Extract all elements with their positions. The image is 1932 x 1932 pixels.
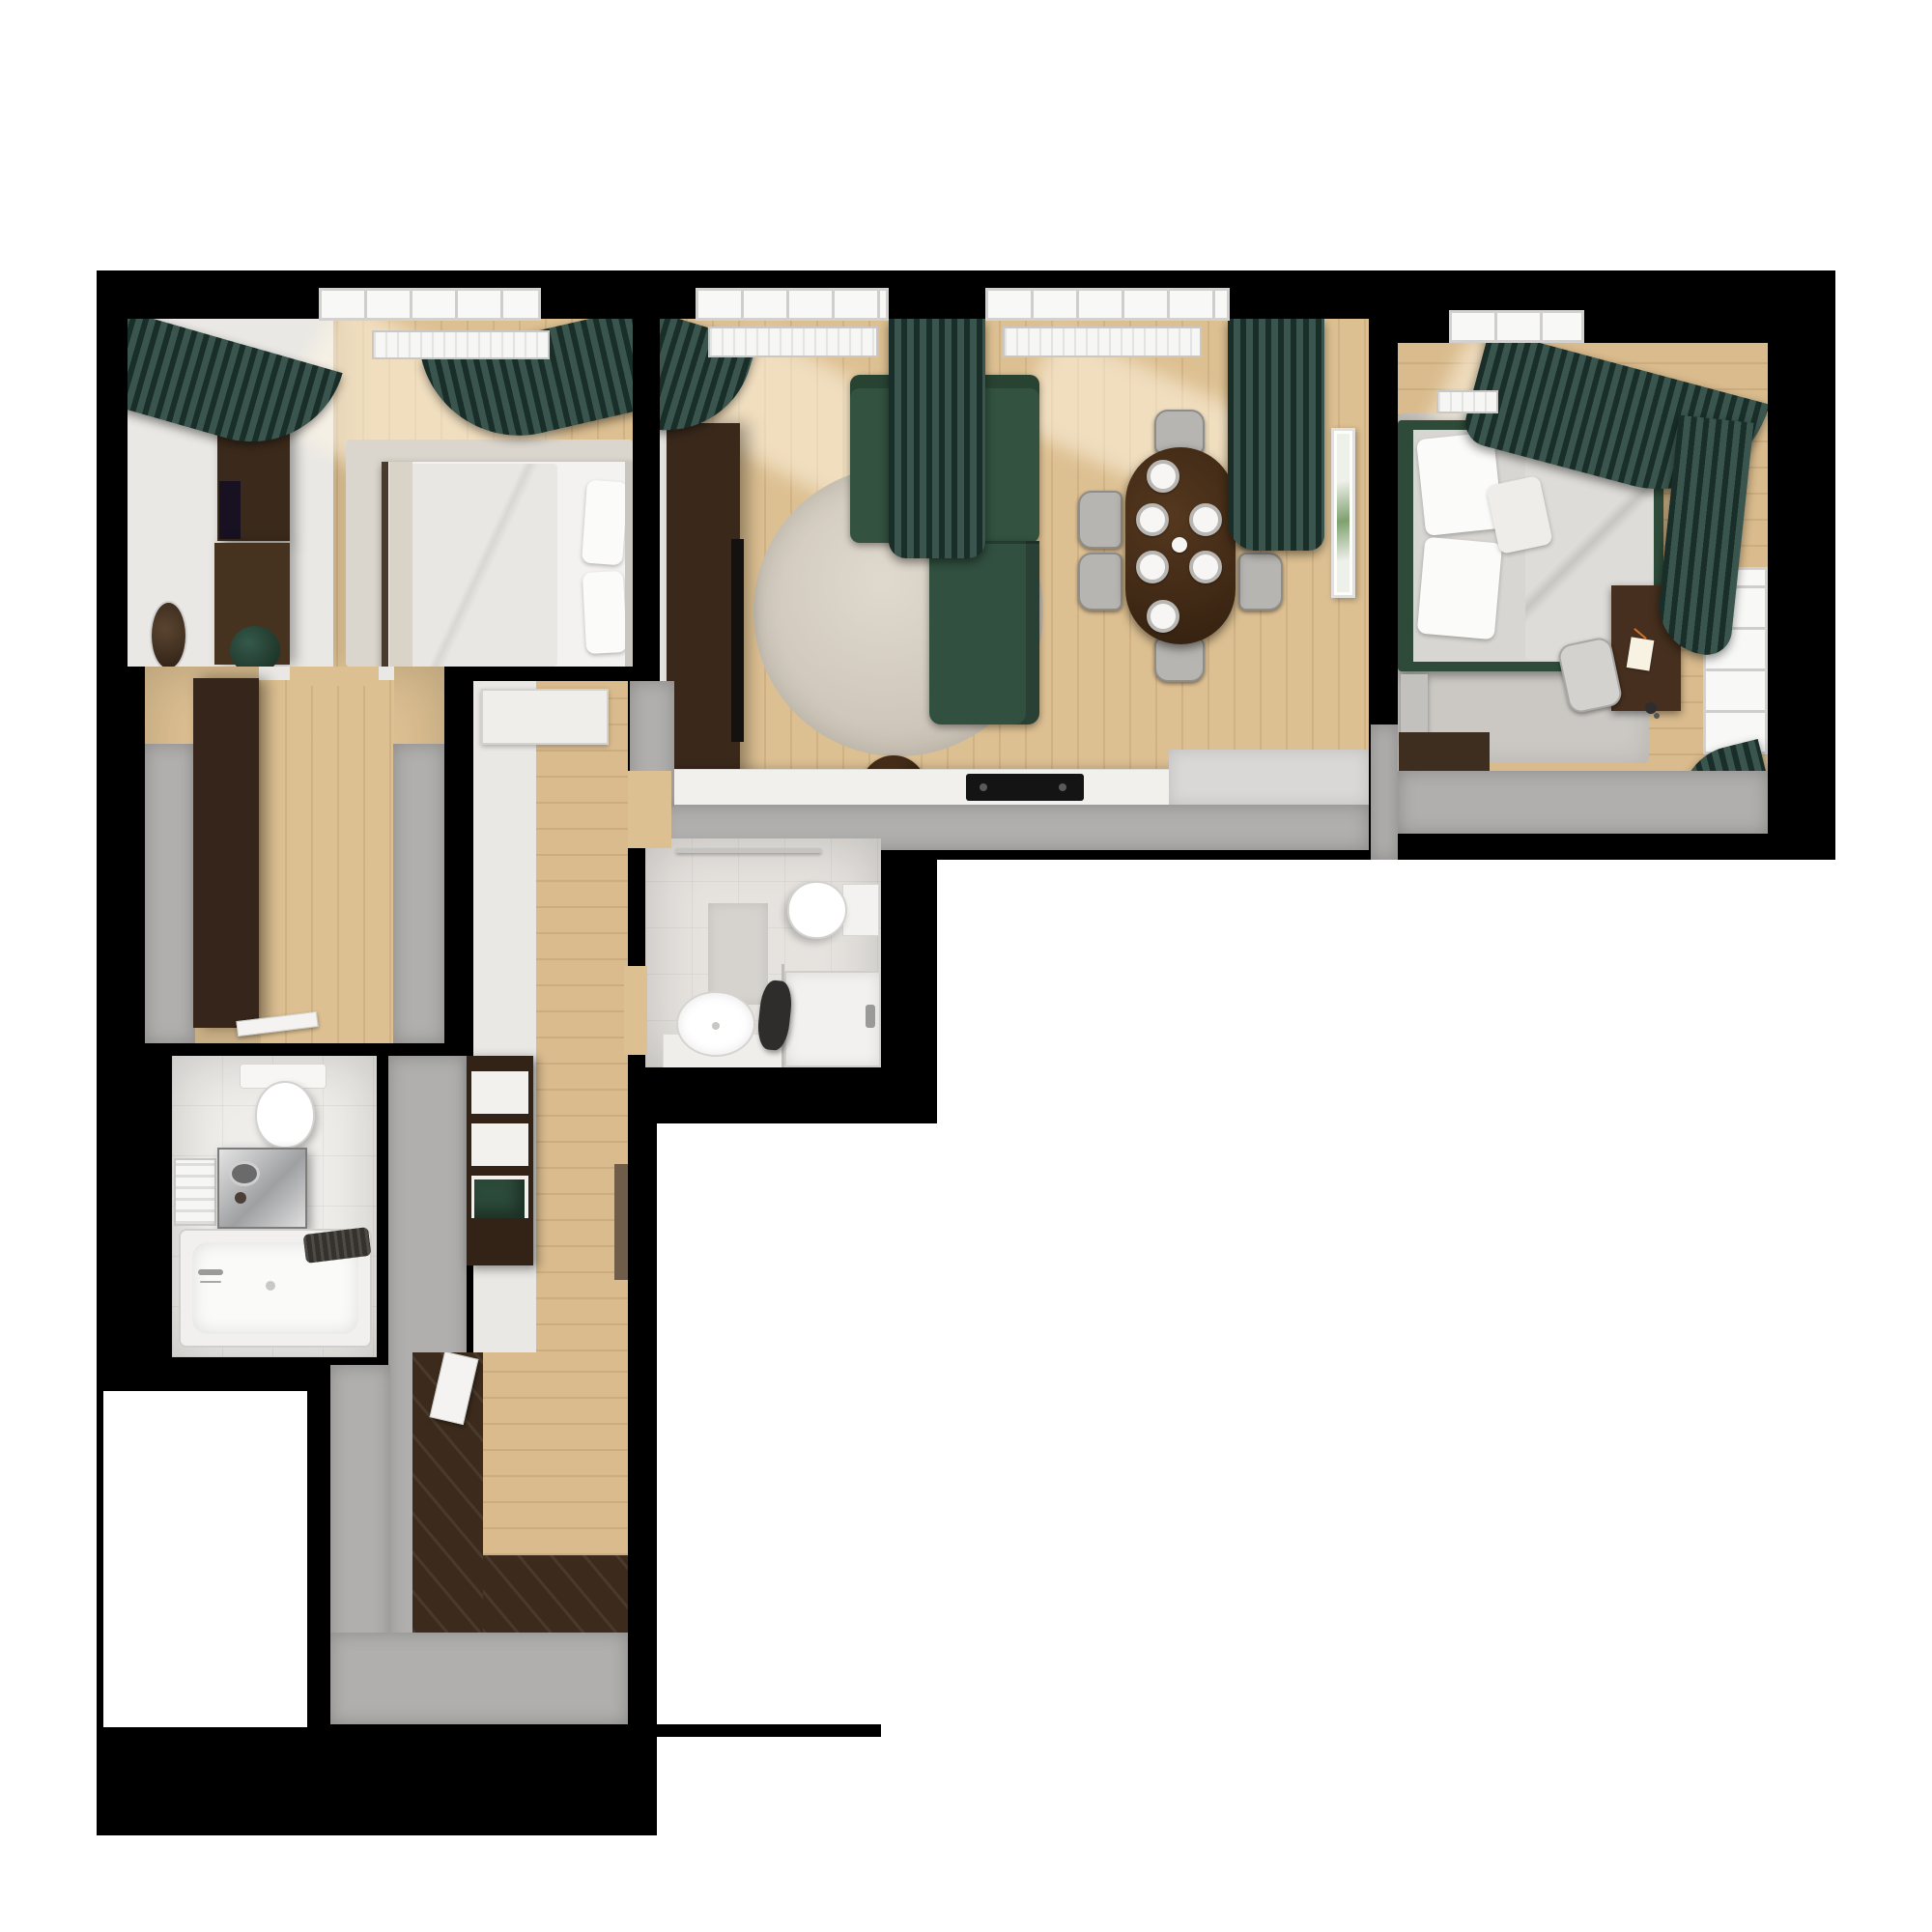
dining-plate-3 bbox=[1189, 503, 1222, 536]
bedroom1-bed-footboard bbox=[382, 462, 388, 667]
room-living-dining bbox=[660, 319, 1369, 850]
room-hallway bbox=[145, 667, 444, 1043]
bedroom2-radiator bbox=[1436, 390, 1498, 413]
dining-plate-4 bbox=[1136, 551, 1169, 583]
dining-plate-6 bbox=[1147, 600, 1179, 633]
bathroom2-sink bbox=[676, 991, 755, 1057]
bedroom1-bed-throw bbox=[389, 462, 412, 667]
shower-fixture bbox=[866, 1005, 875, 1028]
cooktop-knob-2 bbox=[1059, 783, 1066, 791]
cooktop-knob-1 bbox=[980, 783, 987, 791]
washing-machine-knob bbox=[235, 1192, 246, 1204]
wall-bar-bottom bbox=[657, 1724, 881, 1737]
room-bathroom-2 bbox=[645, 838, 881, 1067]
living-window-right bbox=[985, 288, 1230, 321]
room-bedroom-1 bbox=[128, 319, 633, 667]
hallway-west-wall-cap bbox=[145, 744, 195, 1043]
bathroom2-towel-rail bbox=[676, 848, 821, 853]
bathroom1-toilet-bowl bbox=[255, 1081, 315, 1149]
corridor-open-wardrobe bbox=[467, 1056, 533, 1265]
dining-plate-5 bbox=[1189, 551, 1222, 583]
bedroom1-pouf bbox=[230, 626, 280, 667]
kitchen-cooktop bbox=[966, 774, 1084, 801]
floor-plan-canvas: 3D rendered top-down floor plan of an ap… bbox=[0, 0, 1932, 1932]
bedroom1-tv-panel bbox=[219, 481, 241, 539]
bathroom1-towel-radiator bbox=[174, 1158, 216, 1226]
bedroom1-bed-blanket bbox=[412, 464, 557, 667]
room-bedroom-2 bbox=[1398, 343, 1768, 834]
bedroom1-bed bbox=[382, 462, 633, 667]
living-sofa-seat bbox=[929, 541, 1039, 724]
bedroom1-pillow-2 bbox=[582, 571, 627, 654]
corridor-runner-mat bbox=[614, 1164, 628, 1280]
sink-drain bbox=[712, 1022, 720, 1030]
desk-notebook bbox=[1627, 637, 1655, 670]
bedroom1-radiator bbox=[372, 330, 550, 359]
bathroom2-bath-mat bbox=[708, 903, 768, 1005]
living-window-left bbox=[696, 288, 889, 321]
hallway-closet bbox=[193, 678, 259, 1028]
bathtub-towels bbox=[302, 1227, 371, 1264]
door-opening-living bbox=[628, 771, 671, 848]
living-radiator-left bbox=[708, 327, 878, 357]
dining-chair-left-2 bbox=[1078, 553, 1122, 611]
entry-floor-light bbox=[483, 1352, 628, 1555]
living-curtain-right bbox=[1228, 319, 1324, 551]
dining-chair-left-1 bbox=[1078, 491, 1122, 549]
bedroom2-dark-mat bbox=[1399, 732, 1490, 773]
hallway-east-wall-cap bbox=[393, 744, 444, 1043]
kitchen-counter bbox=[671, 769, 1173, 807]
bathtub-faucet bbox=[198, 1269, 223, 1275]
bedroom1-round-mirror bbox=[150, 601, 187, 667]
washing-machine-drum bbox=[229, 1161, 260, 1186]
bedroom1-window bbox=[319, 288, 541, 321]
living-picture-frame bbox=[1331, 428, 1355, 598]
entry-south-wall-cap bbox=[330, 1633, 628, 1724]
bedroom2-south-wall-cap bbox=[1398, 771, 1768, 834]
bathroom2-toilet-tank bbox=[842, 884, 879, 936]
picture-art bbox=[1337, 434, 1350, 592]
hallway-floor bbox=[259, 667, 394, 1043]
entry-dark-floor-horizontal bbox=[483, 1555, 628, 1633]
dining-chair-right-2 bbox=[1238, 553, 1283, 611]
dining-vase bbox=[1172, 537, 1187, 553]
corridor-floor bbox=[536, 681, 628, 1430]
wardrobe-green-box bbox=[474, 1179, 525, 1218]
dining-plate-1 bbox=[1147, 460, 1179, 493]
bedroom2-north-window bbox=[1449, 310, 1584, 343]
dining-plate-2 bbox=[1136, 503, 1169, 536]
bathroom1-bathtub bbox=[179, 1229, 372, 1348]
bathtub-drain bbox=[266, 1281, 275, 1291]
room-bathroom-1 bbox=[172, 1056, 377, 1357]
bedroom2-pillow-2 bbox=[1417, 537, 1502, 640]
living-radiator-right bbox=[1003, 327, 1202, 357]
room-entry bbox=[412, 1352, 628, 1633]
corridor-bench bbox=[481, 689, 609, 745]
door-opening-bathroom2 bbox=[624, 966, 647, 1055]
wardrobe-shelf-2 bbox=[471, 1123, 528, 1166]
door-opening-bedroom1 bbox=[290, 667, 379, 686]
bathroom1-washing-machine bbox=[217, 1148, 307, 1229]
living-tv bbox=[731, 539, 744, 742]
desk-lamp bbox=[1645, 702, 1657, 714]
bedroom2-west-wall-cap bbox=[1371, 724, 1398, 860]
kitchen-peninsula-block bbox=[1169, 750, 1369, 806]
wardrobe-shelf-1 bbox=[471, 1071, 528, 1114]
exterior-notch-white bbox=[103, 1391, 307, 1727]
bedroom1-bed-headboard bbox=[625, 462, 633, 667]
bathroom2-toilet-bowl bbox=[787, 881, 847, 939]
living-curtain-middle bbox=[889, 319, 985, 558]
bedroom1-pillow-1 bbox=[582, 480, 628, 566]
